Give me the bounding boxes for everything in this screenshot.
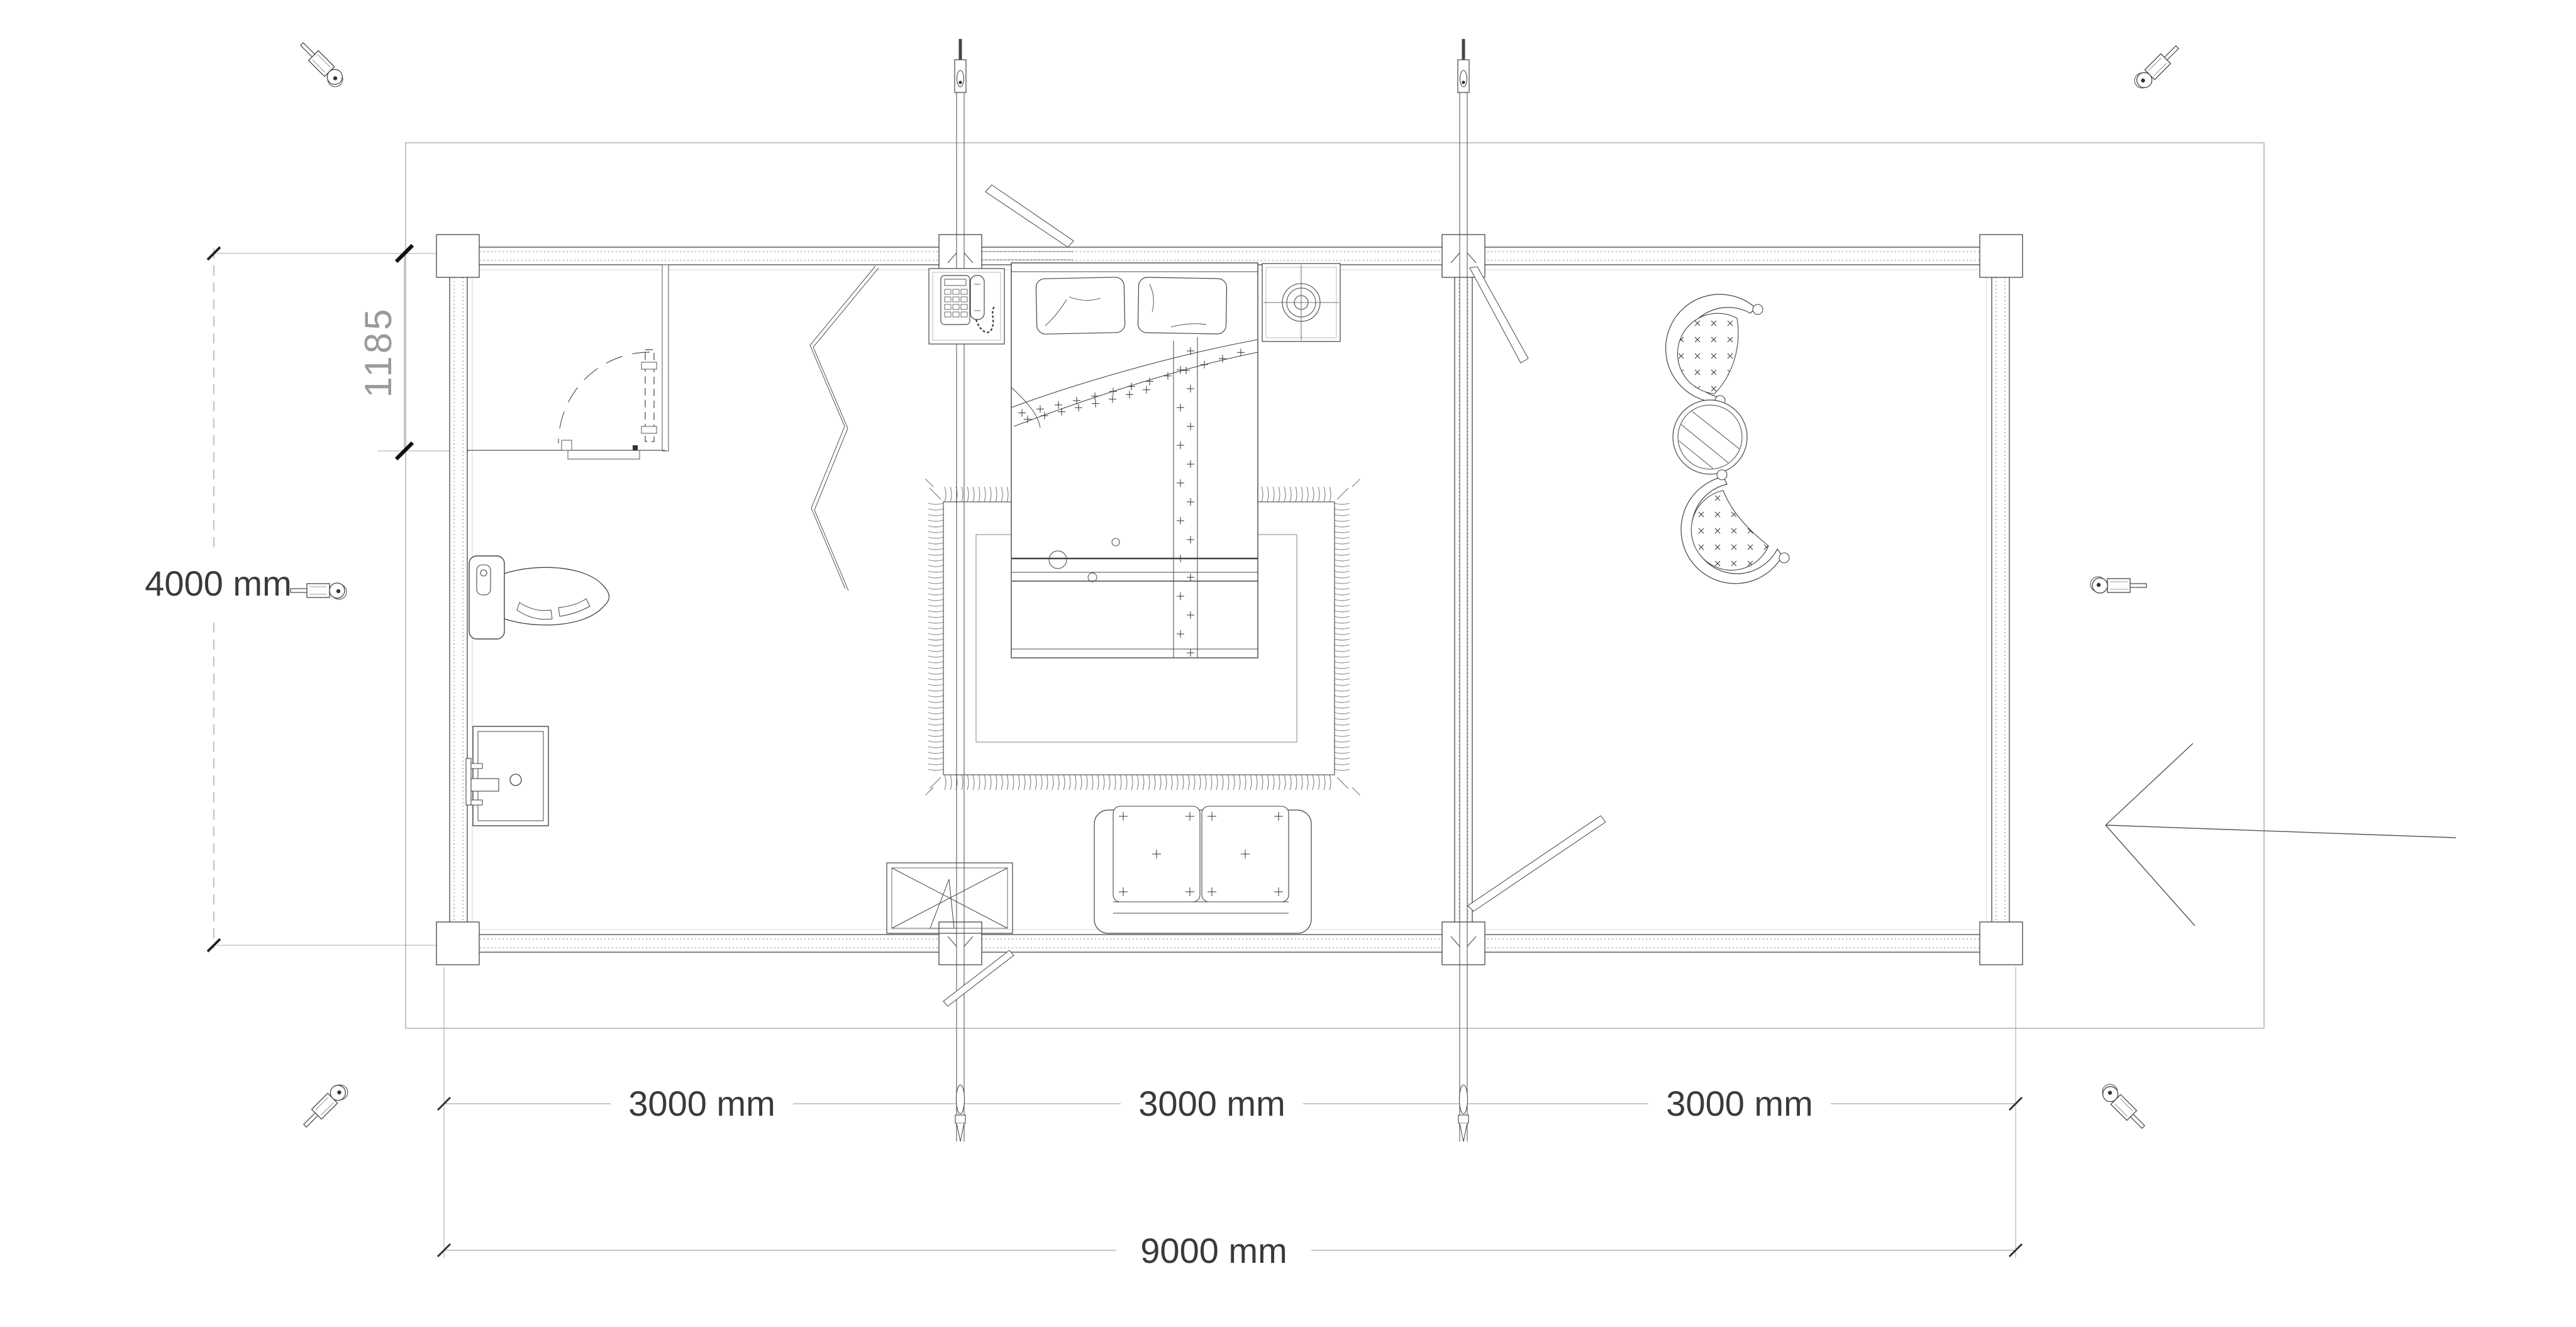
round-glass-table bbox=[1670, 400, 1747, 487]
curl-icon bbox=[1717, 470, 1727, 480]
wall-top bbox=[450, 247, 2009, 265]
toilet bbox=[469, 556, 609, 639]
dim-building-width: 9000 mm bbox=[1140, 1231, 1287, 1270]
double-bed bbox=[1011, 263, 1258, 658]
post-bottom-right bbox=[1980, 922, 2023, 965]
bathroom-wall-vertical bbox=[662, 265, 669, 451]
partition-door-leaf bbox=[1470, 267, 1528, 363]
storm-brace-tool-icon bbox=[2099, 1081, 2150, 1132]
papasan-chair bbox=[1681, 470, 1789, 584]
floor-plan-sheet: 4000 mm 1185 3000 mm 3000 mm 3000 mm 900… bbox=[0, 0, 2576, 1327]
door-hinge-icon bbox=[641, 362, 657, 369]
window-casement-leaf bbox=[985, 185, 1074, 247]
seating-group bbox=[1662, 294, 1789, 584]
curl-icon bbox=[1753, 304, 1763, 314]
dim-building-height: 4000 mm bbox=[145, 564, 291, 603]
drain-icon bbox=[510, 774, 521, 786]
bathroom bbox=[467, 265, 669, 459]
post-bottom-left bbox=[436, 922, 479, 965]
storm-brace-tool-icon bbox=[300, 1081, 351, 1132]
storm-brace-tool-icon bbox=[291, 583, 347, 599]
post-bottom-mid2 bbox=[1442, 922, 1485, 965]
post-top-left bbox=[436, 235, 479, 277]
faucet-icon bbox=[466, 758, 471, 805]
telephone-table bbox=[929, 269, 1004, 344]
post-top-right bbox=[1980, 235, 2023, 277]
entrance-arrow-icon bbox=[2106, 743, 2456, 926]
door-hinge-icon bbox=[641, 426, 657, 433]
folding-screen bbox=[810, 266, 879, 591]
lamp-table bbox=[1262, 264, 1340, 341]
wall-left bbox=[450, 247, 467, 952]
dim-bay-3: 3000 mm bbox=[1666, 1084, 1813, 1123]
dim-bay-1: 3000 mm bbox=[628, 1084, 775, 1123]
door-threshold bbox=[568, 450, 640, 459]
sofa bbox=[1094, 806, 1311, 933]
wall-partition bbox=[1455, 265, 1472, 935]
storm-brace-tool-icon bbox=[296, 39, 347, 90]
partition-door-leaf bbox=[1468, 816, 1606, 911]
door-swing-arc bbox=[558, 352, 650, 443]
wall-right bbox=[1992, 247, 2009, 952]
papasan-chair bbox=[1662, 294, 1765, 406]
washbasin bbox=[466, 726, 548, 826]
storm-brace-tool-icon bbox=[2131, 41, 2182, 92]
dim-bathroom-depth: 1185 bbox=[357, 306, 399, 397]
dim-bay-2: 3000 mm bbox=[1138, 1084, 1285, 1123]
wall-bottom bbox=[450, 935, 2009, 952]
curl-icon bbox=[1779, 553, 1789, 563]
storm-brace-tool-icon bbox=[2090, 577, 2146, 593]
